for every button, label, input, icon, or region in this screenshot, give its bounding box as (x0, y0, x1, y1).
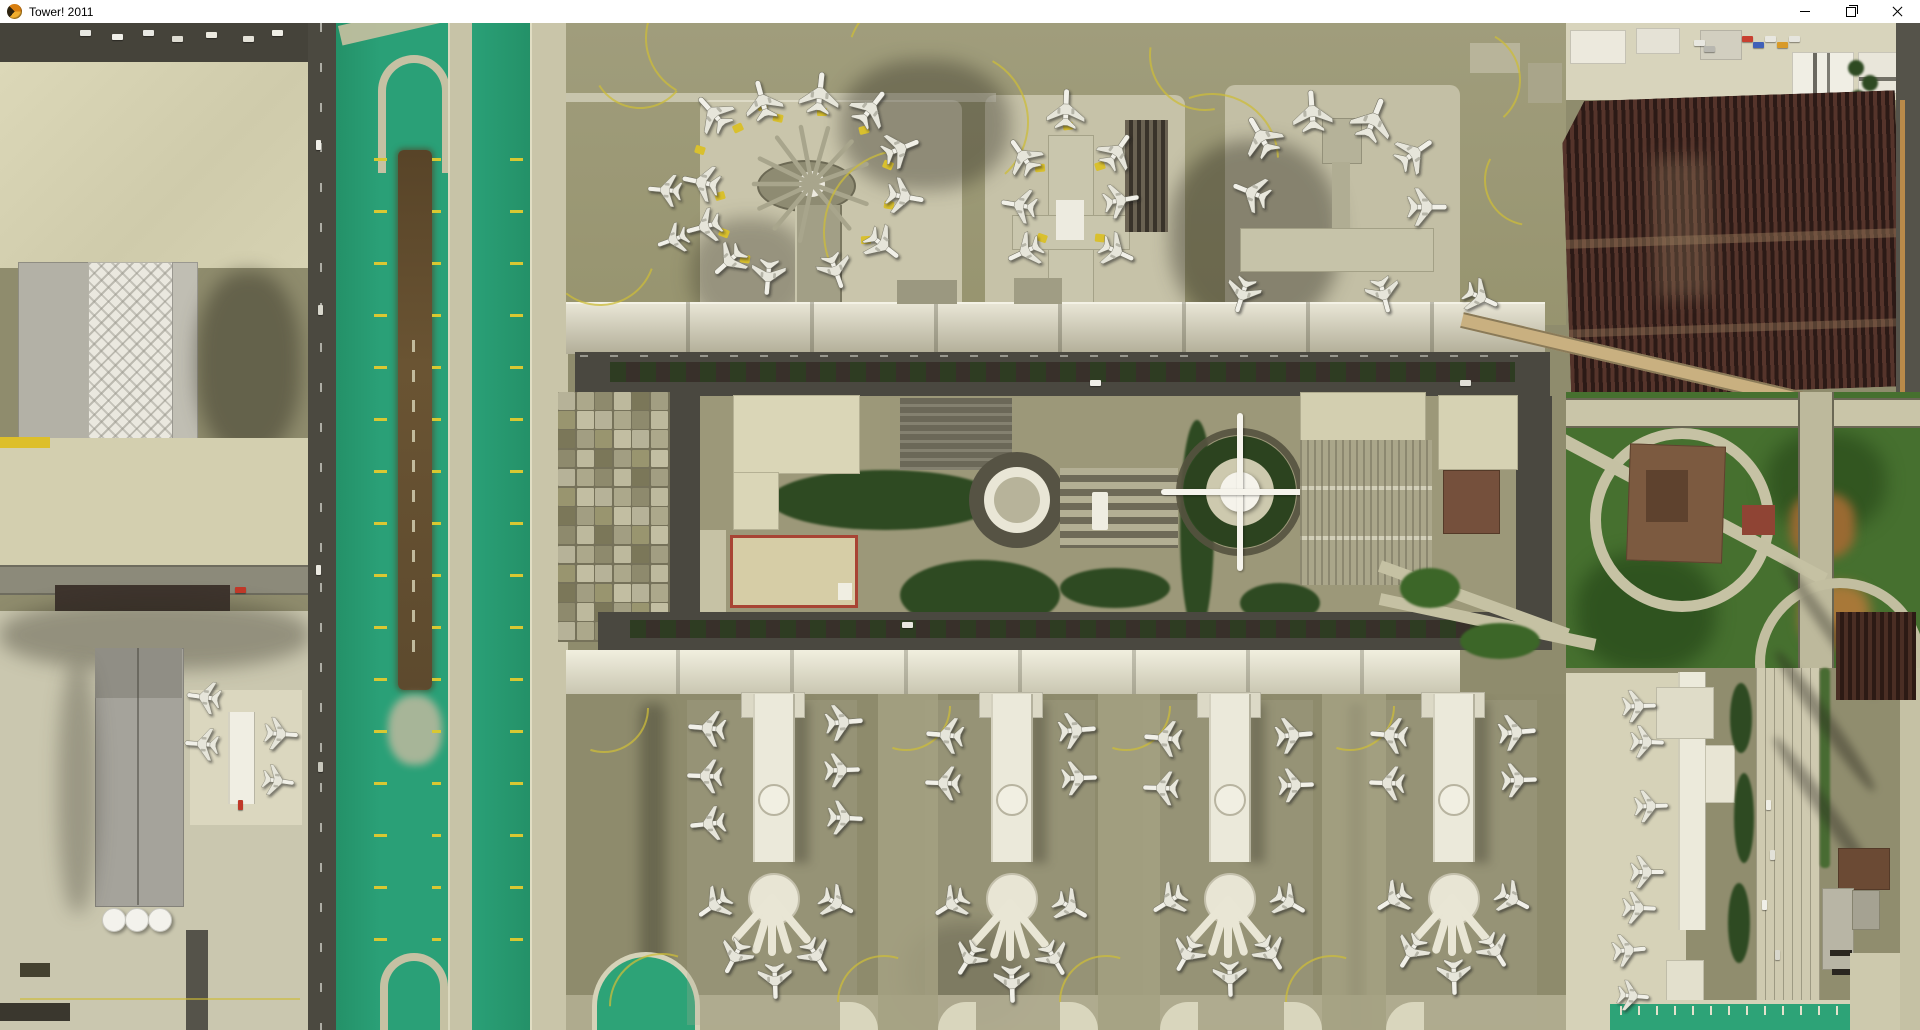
vehicle (1753, 42, 1764, 48)
parking-roof-cell (632, 392, 649, 410)
parking-roof-cell (577, 507, 594, 525)
grass-edge-tick (510, 626, 523, 629)
vehicle (143, 30, 154, 36)
parking-roof-cell (632, 526, 649, 544)
vehicle (1775, 950, 1780, 960)
hangar-roof (88, 262, 174, 440)
grass-edge-tick (510, 522, 523, 525)
grass-edge-tick (432, 158, 441, 161)
satellite-hub (986, 873, 1038, 925)
white-van (1092, 492, 1108, 530)
west-apron-upper (0, 62, 308, 268)
parking-roof-cell (558, 565, 575, 583)
street-trees (1862, 75, 1878, 91)
fuel-tank (148, 908, 172, 932)
vehicle (902, 622, 913, 628)
parking-roof-cell (595, 565, 612, 583)
north-small-building (1528, 63, 1562, 103)
grass-edge-tick (374, 470, 387, 473)
upper-road-median (610, 362, 1515, 382)
grass-edge-tick (510, 210, 523, 213)
grass-edge-tick (432, 314, 441, 317)
terminal2-core (1056, 200, 1084, 240)
sepulveda-highway (1756, 668, 1820, 1030)
parking-roof-cell (614, 526, 631, 544)
grass-white-tick (1836, 1006, 1838, 1015)
parking-roof-cell (558, 392, 575, 410)
window-title: Tower! 2011 (29, 5, 1782, 19)
parking-roof-cell (614, 430, 631, 448)
se-gray-building (1852, 890, 1880, 930)
parking-roof-cell (558, 507, 575, 525)
grass-edge-tick (374, 626, 387, 629)
campus-west-road (665, 396, 700, 648)
parking-roof-cell (558, 411, 575, 429)
landscaping (1060, 568, 1170, 608)
parking-roof-cell (651, 469, 668, 487)
yellow-edge-line (20, 998, 300, 1000)
brown-building (1443, 470, 1500, 534)
parking-roof-cell (577, 450, 594, 468)
grass-edge-tick (432, 470, 441, 473)
grass-edge-tick (432, 626, 441, 629)
grass-edge-tick (374, 886, 387, 889)
parking-roof-cell (614, 546, 631, 564)
maximize-button[interactable] (1828, 0, 1874, 23)
parking-roof-cell (651, 430, 668, 448)
parking-roof-cell (577, 565, 594, 583)
ne-building (1570, 30, 1626, 64)
minimize-icon (1800, 11, 1810, 12)
grass-edge-tick (510, 418, 523, 421)
parking-roof-cell (595, 488, 612, 506)
parking-aisle (1569, 318, 1903, 338)
app-icon (7, 4, 22, 19)
minimize-button[interactable] (1782, 0, 1828, 23)
ne-building (1636, 28, 1680, 54)
grass-white-tick (1728, 1006, 1730, 1015)
interchange-main-road (1566, 398, 1920, 428)
parking-roof-cell (632, 450, 649, 468)
parking-roof-cell (558, 622, 575, 640)
vehicle (316, 565, 321, 575)
terminal3-connector (1332, 162, 1350, 228)
striped-utility-building (1125, 120, 1168, 232)
parking-roof-cell (577, 469, 594, 487)
vehicle (1770, 850, 1775, 860)
vehicle (1777, 42, 1788, 48)
vehicle (238, 800, 243, 810)
terminal1-hub-rotunda (799, 171, 825, 197)
grass-edge-tick (510, 158, 523, 161)
southwest-dark-block (0, 1003, 70, 1021)
grass-edge-tick (432, 366, 441, 369)
parking-roof-cell (632, 430, 649, 448)
south-taxilane-column (1098, 694, 1160, 1030)
grass-edge-tick (510, 834, 523, 837)
parking-roof-cell (614, 392, 631, 410)
grass-band-east (472, 23, 530, 1030)
pier-node (996, 784, 1028, 816)
grass-edge-tick (374, 210, 387, 213)
parking-roof-cell (651, 546, 668, 564)
vehicle (272, 30, 283, 36)
south-taxilane-column (878, 694, 938, 1030)
grass-white-tick (1764, 1006, 1766, 1015)
satellite-hub (1428, 873, 1480, 925)
vehicle (1460, 380, 1471, 386)
cargo-warehouse-seam (137, 648, 139, 905)
grass-edge-tick (432, 418, 441, 421)
parking-roof-cell (577, 488, 594, 506)
grass-edge-tick (510, 366, 523, 369)
grass-edge-tick (432, 678, 441, 681)
vehicle (1704, 46, 1715, 52)
boulevard-sidewalk (1900, 100, 1905, 392)
hangar-shadow (196, 271, 301, 456)
grass-edge-tick (374, 730, 387, 733)
grass-edge-tick (432, 938, 441, 941)
vehicle (316, 140, 321, 150)
parking-roof-cell (577, 622, 594, 640)
parking-roof-cell (558, 450, 575, 468)
vehicle (1742, 36, 1753, 42)
fuel-tank (125, 908, 149, 932)
red-roof-patch (1742, 505, 1775, 535)
grass-white-tick (1692, 1006, 1694, 1015)
parking-roof-cell (651, 565, 668, 583)
parking-roof-cell (614, 488, 631, 506)
satellite-hub (748, 873, 800, 925)
grass-edge-tick (432, 782, 441, 785)
landscaping (770, 470, 1000, 530)
grass-white-tick (1638, 1006, 1640, 1015)
parking-roof-cell (558, 603, 575, 621)
lower-road-median (630, 620, 1520, 638)
top-left-road (0, 23, 336, 62)
grass-edge-tick (374, 158, 387, 161)
median-trees (1730, 683, 1752, 753)
south-taxilane-column (1322, 694, 1386, 1030)
parking-roof-cell (577, 546, 594, 564)
parking-roof-cell (651, 584, 668, 602)
hangar-west-bay (18, 262, 90, 440)
vehicle (318, 762, 323, 772)
south-terminal-pier (1209, 694, 1251, 862)
vehicle (1789, 36, 1800, 42)
vehicle (1762, 900, 1767, 910)
grass-edge-tick (374, 834, 387, 837)
parking-roof-cell (614, 469, 631, 487)
grass-edge-tick (432, 262, 441, 265)
south-terminal-pier (753, 694, 795, 862)
round-building-core (994, 477, 1040, 523)
south-terminal-pier (1433, 694, 1475, 862)
parking-roof-cell (651, 392, 668, 410)
parking-roof-cell (595, 507, 612, 525)
parking-roof-cell (558, 584, 575, 602)
grass-edge-tick (432, 886, 441, 889)
red-building-annex (838, 583, 852, 600)
grass-white-tick (1620, 1006, 1622, 1015)
parking-roof-cell (558, 488, 575, 506)
parking-roof-cell (595, 411, 612, 429)
dirt-strip (398, 150, 432, 690)
perimeter-road (308, 23, 336, 1030)
spine-block (1014, 278, 1062, 304)
pier-node (758, 784, 790, 816)
east-office-block (1438, 395, 1518, 470)
terminal8-south-building (1666, 960, 1704, 1004)
parking-roof-cell (632, 469, 649, 487)
grass-edge-tick (374, 678, 387, 681)
hangar-east-bay (172, 262, 198, 440)
se-grass-strip (1610, 1000, 1850, 1030)
grass-edge-tick (510, 730, 523, 733)
grass-edge-tick (432, 834, 441, 837)
terminal8-annex (1705, 745, 1735, 803)
parking-roof-cell (651, 526, 668, 544)
parking-roof-cell (595, 584, 612, 602)
grass-edge-tick (432, 210, 441, 213)
median-trees (1728, 883, 1750, 963)
perimeter-road-dashes (320, 23, 322, 1030)
parking-roof-cell (577, 584, 594, 602)
median-trees (1734, 773, 1754, 863)
grass-edge-tick (510, 470, 523, 473)
ramp-median-green (1460, 623, 1540, 659)
terminal3-hub (1322, 118, 1362, 164)
vehicle (1766, 800, 1771, 810)
parking-roof-cell (595, 450, 612, 468)
vehicle (235, 587, 246, 593)
street-trees (1848, 60, 1864, 76)
grass-edge-tick (432, 730, 441, 733)
parking-roof-cell (632, 565, 649, 583)
grass-white-tick (1674, 1006, 1676, 1015)
parking-roof-cell (632, 507, 649, 525)
grass-white-tick (1800, 1006, 1802, 1015)
vehicle (243, 36, 254, 42)
narrow-building (700, 530, 726, 612)
satellite-hub (1204, 873, 1256, 925)
parking-roof-cell (558, 546, 575, 564)
parking-roof-cell (558, 469, 575, 487)
grass-edge-tick (374, 522, 387, 525)
grass-edge-tick (432, 574, 441, 577)
admin-building (733, 395, 860, 474)
grass-white-tick (1746, 1006, 1748, 1015)
parking-roof-cell (614, 507, 631, 525)
satellite-map-viewport[interactable] (0, 23, 1920, 1030)
grass-edge-tick (374, 262, 387, 265)
parking-roof-cell (632, 546, 649, 564)
vehicle (80, 30, 91, 36)
grass-white-tick (1710, 1006, 1712, 1015)
parking-roof-cell (651, 450, 668, 468)
close-icon (1892, 6, 1903, 17)
grass-edge-tick (374, 366, 387, 369)
parking-entrance (1651, 157, 1714, 299)
grass-white-tick (1656, 1006, 1658, 1015)
pier-node (1438, 784, 1470, 816)
runway-end-arch-south (380, 953, 448, 1030)
parking-roof-cell (595, 469, 612, 487)
terminal8-headhouse (1656, 687, 1714, 739)
parking-roof-cell (595, 392, 612, 410)
vehicle (1765, 36, 1776, 42)
parking-roof-cell (577, 392, 594, 410)
southwest-dark-block (20, 963, 50, 977)
ramp-median-green (1400, 568, 1460, 608)
parking-roof-cell (632, 488, 649, 506)
parking-roof-cell (651, 507, 668, 525)
grass-edge-tick (374, 938, 387, 941)
grass-edge-tick (510, 574, 523, 577)
vehicle (206, 32, 217, 38)
fuel-tank (102, 908, 126, 932)
north-service-line (566, 93, 996, 102)
upper-road-dashes (580, 355, 1540, 357)
se-brown-building (1838, 848, 1890, 890)
tower-2011-window: Tower! 2011 (0, 0, 1920, 1030)
spine-segments (566, 302, 1545, 352)
grass-band-west (336, 23, 380, 1030)
south-spine-segments (566, 650, 1460, 694)
southwest-road (186, 930, 208, 1030)
parking-roof-cell (595, 526, 612, 544)
yellow-marking-strip (0, 437, 50, 448)
spine-block (897, 280, 957, 304)
grass-edge-tick (510, 678, 523, 681)
parking-roof-cell (651, 488, 668, 506)
vehicle (318, 305, 323, 315)
vehicle (112, 34, 123, 40)
southwest-pier (228, 712, 255, 804)
grass-edge-tick (510, 938, 523, 941)
parking-roof-cell (651, 411, 668, 429)
dark-buildings-row (55, 585, 230, 611)
parking-roof-cell (614, 411, 631, 429)
parking-roof-cell (632, 584, 649, 602)
close-button[interactable] (1874, 0, 1920, 23)
north-small-building (1470, 43, 1520, 73)
east-office-row (1300, 392, 1426, 442)
parking-rows-east (1060, 468, 1178, 548)
grass-edge-tick (510, 886, 523, 889)
grass-edge-tick (374, 782, 387, 785)
parking-roof-cell (614, 584, 631, 602)
grass-edge-tick (374, 314, 387, 317)
parking-roof-cell (614, 565, 631, 583)
grass-white-tick (1818, 1006, 1820, 1015)
grass-edge-tick (510, 262, 523, 265)
vehicle (1694, 40, 1705, 46)
grass-white-tick (1782, 1006, 1784, 1015)
grass-edge-tick (374, 574, 387, 577)
parking-roof-cell (558, 526, 575, 544)
parking-roof-cell (577, 411, 594, 429)
parking-roof-cell (614, 450, 631, 468)
se-dark-lot (1836, 612, 1916, 700)
interchange-building-roof (1646, 470, 1688, 522)
vehicle (172, 36, 183, 42)
parking-roof-cell (577, 430, 594, 448)
grass-edge-tick (510, 314, 523, 317)
runway-end-arch (378, 55, 450, 173)
se-parked-cars (1830, 950, 1852, 956)
ne-building (1700, 30, 1742, 60)
parking-roof-cell (577, 603, 594, 621)
parking-roof-cell (595, 546, 612, 564)
vehicle (1090, 380, 1101, 386)
grass-edge-tick (432, 522, 441, 525)
parking-aisle (1566, 228, 1900, 249)
restore-icon (1846, 7, 1856, 17)
parking-roof-cell (558, 430, 575, 448)
terminal3-building (1240, 228, 1434, 272)
south-terminal-pier (991, 694, 1033, 862)
title-bar: Tower! 2011 (0, 0, 1920, 23)
parking-roof-cell (577, 526, 594, 544)
central-parking-structure (558, 392, 670, 642)
dirt-center-line (412, 340, 415, 660)
right-edge-pavement (1900, 668, 1920, 1030)
parking-roof-cell (595, 430, 612, 448)
grass-edge-tick (510, 782, 523, 785)
pier-node (1214, 784, 1246, 816)
theme-building-arch-ew (1161, 489, 1319, 495)
admin-building-wing (733, 472, 779, 530)
parking-roof-cell (632, 411, 649, 429)
east-parking-structure (1300, 440, 1432, 585)
grass-edge-tick (374, 418, 387, 421)
highway-median-green (1820, 668, 1830, 868)
